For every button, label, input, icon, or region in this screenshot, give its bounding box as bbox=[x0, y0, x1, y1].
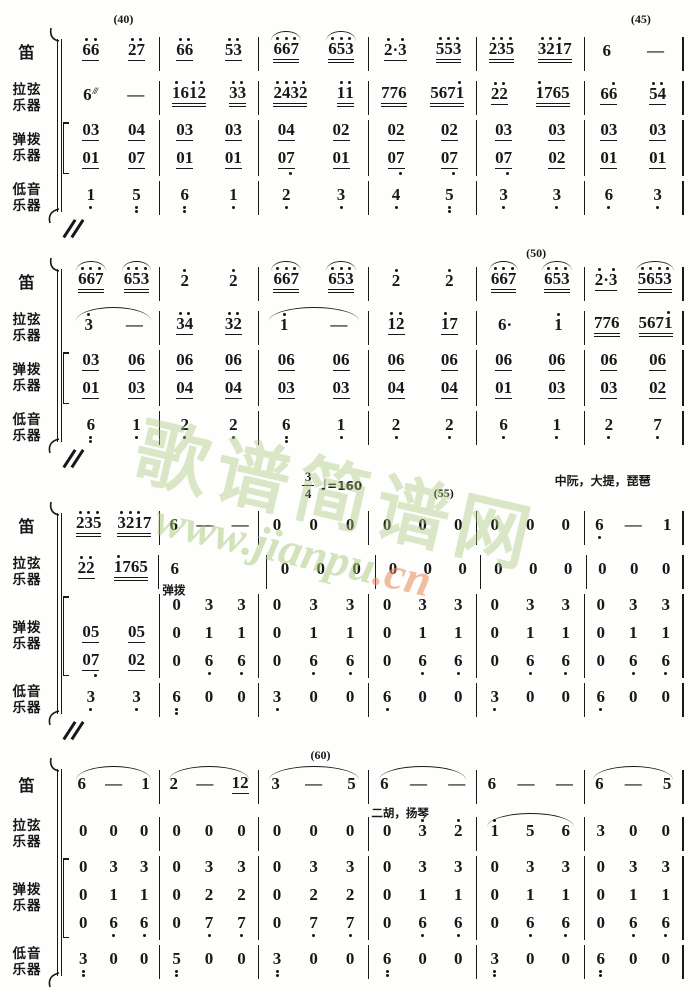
note-char: 6 bbox=[526, 647, 535, 681]
octave-dot-below-slot bbox=[502, 434, 505, 445]
note-char: 6 bbox=[595, 511, 604, 545]
note-digit: — bbox=[625, 775, 642, 793]
note-char: 6 bbox=[562, 647, 571, 681]
note-digit: — bbox=[518, 775, 535, 793]
octave-dot-below bbox=[457, 672, 460, 675]
note-digit: 4 bbox=[449, 379, 458, 397]
measure: 243211 bbox=[259, 81, 370, 115]
octave-dot-below-slot bbox=[276, 706, 279, 717]
note-char: 6 bbox=[661, 647, 670, 681]
measure: 033 bbox=[369, 856, 477, 884]
note-token: 6 bbox=[418, 647, 427, 681]
system-double-barline bbox=[57, 769, 62, 976]
note-token: 3 bbox=[553, 181, 562, 215]
note-digit: 0 bbox=[388, 379, 397, 397]
note-char: 5 bbox=[132, 265, 141, 304]
note-token: — bbox=[196, 770, 213, 804]
note-digit: 3 bbox=[661, 858, 670, 876]
measure: 61 bbox=[68, 411, 160, 445]
note-digit: 0 bbox=[649, 149, 658, 167]
note-char: 2 bbox=[392, 267, 401, 301]
note-char: 6 bbox=[91, 36, 100, 73]
note-digit: 6 bbox=[658, 351, 667, 369]
note-char: 3 bbox=[225, 310, 234, 347]
note-token: 2·3 bbox=[595, 266, 618, 303]
note-char: 5 bbox=[444, 35, 453, 74]
note-token: 0 bbox=[418, 511, 427, 545]
note-char: 7 bbox=[390, 79, 399, 118]
note-token: 6 bbox=[454, 909, 463, 943]
octave-dot-below-slot bbox=[349, 670, 352, 681]
note-token: 6 bbox=[170, 511, 179, 545]
note-digit: 1 bbox=[172, 84, 181, 102]
note-digit: 6 bbox=[629, 652, 638, 670]
note-digit: 0 bbox=[237, 822, 246, 840]
note-char: 3 bbox=[609, 266, 618, 303]
note-char: 0 bbox=[526, 683, 535, 717]
note-token: 6 bbox=[205, 647, 214, 681]
note-digit: 7 bbox=[594, 314, 603, 332]
octave-dot-below bbox=[276, 970, 279, 973]
note-char: 7 bbox=[396, 144, 405, 181]
octave-dot-below bbox=[555, 436, 558, 439]
note-digit: 0 bbox=[82, 379, 91, 397]
note-char: — bbox=[647, 37, 664, 71]
measure: 0707 bbox=[369, 148, 477, 176]
note-char: 0 bbox=[205, 945, 214, 979]
measure: 011 bbox=[585, 884, 684, 912]
note-digit: 0 bbox=[333, 379, 342, 397]
note-char: — bbox=[196, 511, 213, 545]
measure: 033 bbox=[369, 594, 477, 622]
note-digit: 1 bbox=[337, 84, 346, 102]
measure: 22 bbox=[160, 267, 258, 301]
note-char: 1 bbox=[490, 817, 499, 851]
note-token: 0 bbox=[109, 945, 118, 979]
octave-dot-below-slot bbox=[664, 932, 667, 943]
octave-dot-above-slot bbox=[348, 265, 351, 270]
note-char: 4 bbox=[233, 374, 242, 411]
note-digit: 3 bbox=[286, 379, 295, 397]
measure: 221765 bbox=[68, 555, 159, 589]
note-char: 6 bbox=[131, 553, 140, 592]
note-digit: 2 bbox=[557, 149, 566, 167]
note-digit: 6 bbox=[109, 914, 118, 932]
note-digit: 6 bbox=[282, 416, 291, 434]
octave-dot-below bbox=[175, 970, 178, 973]
note-digit: 6 bbox=[605, 186, 614, 204]
note-digit: 0 bbox=[600, 351, 609, 369]
note-digit: — bbox=[647, 42, 664, 60]
measure: 033 bbox=[68, 856, 160, 884]
note-digit: 1 bbox=[504, 379, 513, 397]
octave-dot-below bbox=[240, 672, 243, 675]
note-token: 2 bbox=[282, 181, 291, 215]
sheet-music-page: 笛拉弦乐器弹拨乐器低音乐器662766536676532·35532353217… bbox=[0, 0, 700, 1000]
note-token: 1 bbox=[87, 181, 96, 215]
note-token: 34 bbox=[176, 310, 193, 347]
note-digit: 3 bbox=[658, 121, 667, 139]
instrument-label: 拉弦乐器 bbox=[0, 550, 54, 594]
note-digit: 6 bbox=[647, 314, 656, 332]
measure: 33 bbox=[68, 683, 160, 717]
note-char: 7 bbox=[594, 309, 603, 348]
measure: 6—5 bbox=[585, 770, 684, 804]
note-digit: 1 bbox=[418, 886, 427, 904]
note-digit: 0 bbox=[140, 822, 149, 840]
measure: 066 bbox=[585, 650, 684, 678]
note-token: 6 bbox=[380, 770, 389, 804]
measure: 2—12 bbox=[160, 770, 258, 804]
note-char: 7 bbox=[290, 265, 299, 304]
note-digit: 2 bbox=[180, 272, 189, 290]
octave-dot-below bbox=[175, 708, 178, 711]
note-digit: 1 bbox=[205, 624, 214, 642]
note-digit: 6 bbox=[504, 351, 513, 369]
note-digit: 0 bbox=[454, 950, 463, 968]
measure: 033 bbox=[259, 856, 370, 884]
note-token: 5671 bbox=[639, 309, 673, 348]
note-digit: 3 bbox=[562, 596, 571, 614]
note-char: 6 bbox=[237, 647, 246, 681]
note-token: 2 bbox=[180, 411, 189, 445]
note-digit: 2 bbox=[229, 272, 238, 290]
note-token: 04 bbox=[441, 374, 458, 411]
note-token: 6 bbox=[603, 37, 612, 71]
measure: 066 bbox=[68, 912, 160, 940]
note-digit: 2 bbox=[170, 775, 179, 793]
octave-dot-above bbox=[144, 267, 147, 270]
octave-dot-below-slot bbox=[82, 968, 85, 979]
note-token: — bbox=[518, 770, 535, 804]
note-char: — bbox=[625, 770, 642, 804]
note-digit: 0 bbox=[597, 652, 606, 670]
note-char: 1 bbox=[536, 79, 545, 118]
staff-row: 612261226127 bbox=[68, 406, 684, 450]
measure-number: (45) bbox=[631, 12, 651, 27]
octave-dot-below bbox=[656, 206, 659, 209]
note-char: 0 bbox=[490, 511, 499, 545]
note-char: 0 bbox=[600, 374, 609, 411]
octave-dot-below-slot bbox=[421, 932, 424, 943]
octave-dot-below bbox=[340, 206, 343, 209]
note-token: 0 bbox=[205, 817, 214, 851]
note-token: 3 bbox=[490, 683, 499, 717]
octave-dot-below bbox=[632, 934, 635, 937]
note-digit: 6 bbox=[341, 351, 350, 369]
note-digit: 0 bbox=[490, 596, 499, 614]
measure: 300 bbox=[585, 817, 684, 851]
note-digit: 1 bbox=[91, 149, 100, 167]
note-digit: 2 bbox=[396, 121, 405, 139]
note-token: 3217 bbox=[117, 509, 151, 548]
note-digit: 0 bbox=[562, 950, 571, 968]
note-digit: 0 bbox=[418, 950, 427, 968]
note-digit: 2 bbox=[445, 416, 454, 434]
note-char: 3 bbox=[499, 181, 508, 215]
note-char: 6 bbox=[544, 265, 553, 304]
note-char: 2 bbox=[137, 646, 146, 683]
note-digit: 5 bbox=[526, 822, 535, 840]
octave-dot-below bbox=[89, 206, 92, 209]
octave-dot-below bbox=[285, 206, 288, 209]
note-digit: 6 bbox=[595, 516, 604, 534]
staves: 6—12—123—56——6——6—5000000000二胡，扬琴0321563… bbox=[68, 742, 684, 984]
note-char: 7 bbox=[137, 36, 146, 73]
octave-dot-below bbox=[175, 974, 178, 977]
octave-dot-below bbox=[448, 436, 451, 439]
measure: 161233 bbox=[160, 81, 258, 115]
octave-dot-below-slot bbox=[656, 434, 659, 445]
note-digit: 0 bbox=[389, 560, 398, 578]
note-digit: 0 bbox=[383, 516, 392, 534]
note-digit: 7 bbox=[449, 149, 458, 167]
note-digit: 0 bbox=[383, 652, 392, 670]
note-token: 0 bbox=[630, 555, 639, 589]
note-token: 0 bbox=[629, 817, 638, 851]
octave-dot-below-slot bbox=[183, 204, 186, 215]
note-digit: 3 bbox=[117, 514, 126, 532]
note-digit: 1 bbox=[456, 84, 465, 102]
note-token: — bbox=[127, 81, 144, 115]
note-digit: 2 bbox=[282, 186, 291, 204]
note-digit: 3 bbox=[629, 596, 638, 614]
note-char: 0 bbox=[309, 683, 318, 717]
note-token: 2 bbox=[445, 267, 454, 301]
octave-dot-below bbox=[564, 672, 567, 675]
note-char: 0 bbox=[526, 945, 535, 979]
note-digit: 0 bbox=[109, 950, 118, 968]
note-token: 07 bbox=[128, 144, 145, 181]
note-digit: 0 bbox=[82, 121, 91, 139]
octave-dot-above bbox=[511, 267, 514, 270]
measure: 0303 bbox=[160, 120, 258, 148]
note-digit: — bbox=[196, 775, 213, 793]
note-token: 6 bbox=[418, 909, 427, 943]
note-char: 0 bbox=[598, 555, 607, 589]
note-digit: 3 bbox=[345, 270, 354, 288]
note-char: 2 bbox=[445, 267, 454, 301]
note-digit: 0 bbox=[333, 351, 342, 369]
octave-dot-above-slot bbox=[666, 265, 669, 270]
note-char: 3 bbox=[490, 683, 499, 717]
note-digit: 0 bbox=[82, 623, 91, 641]
note-digit: 6 bbox=[609, 351, 618, 369]
note-digit: 0 bbox=[495, 379, 504, 397]
measure: 1217 bbox=[369, 311, 477, 345]
note-digit: — bbox=[330, 316, 347, 334]
note-token: 03 bbox=[600, 374, 617, 411]
note-token: 0 bbox=[383, 511, 392, 545]
note-digit: 6 bbox=[544, 270, 553, 288]
note-token: 03 bbox=[128, 374, 145, 411]
octave-dot-below-slot bbox=[285, 434, 288, 445]
note-digit: 3 bbox=[346, 858, 355, 876]
note-char: — bbox=[126, 311, 143, 345]
note-token: 0 bbox=[346, 817, 355, 851]
note-digit: 0 bbox=[346, 688, 355, 706]
staff-row: 000000000二胡，扬琴032156300 bbox=[68, 812, 684, 856]
note-digit: 6 bbox=[491, 270, 500, 288]
measure: 667653 bbox=[259, 37, 370, 71]
note-digit: 0 bbox=[82, 351, 91, 369]
octave-dot-below-slot bbox=[564, 932, 567, 943]
plucked-group-bracket bbox=[63, 858, 69, 938]
note-digit: 2 bbox=[595, 271, 604, 289]
note-char: 3 bbox=[345, 35, 354, 74]
score-system: 笛拉弦乐器弹拨乐器低音乐器23532176——0000000006—122176… bbox=[0, 470, 700, 722]
note-char: 5 bbox=[655, 265, 664, 304]
note-token: 66 bbox=[176, 36, 193, 73]
octave-dot-below-slot bbox=[564, 670, 567, 681]
note-char: 2 bbox=[78, 554, 87, 591]
measure: 61 bbox=[477, 411, 585, 445]
note-digit: 6 bbox=[454, 652, 463, 670]
octave-dot-below bbox=[135, 708, 138, 711]
note-token: 0 bbox=[172, 817, 181, 851]
note-digit: 3 bbox=[176, 315, 185, 333]
octave-dot-below bbox=[599, 970, 602, 973]
measure: 033 bbox=[160, 856, 258, 884]
octave-dot-below bbox=[232, 206, 235, 209]
note-digit: 0 bbox=[548, 149, 557, 167]
note-digit: 6 bbox=[562, 652, 571, 670]
note-digit: 4 bbox=[282, 84, 291, 102]
instrument-label: 弹拨乐器 bbox=[0, 856, 54, 940]
note-token: 0 bbox=[424, 555, 433, 589]
note-digit: 0 bbox=[600, 379, 609, 397]
note-token: 2 bbox=[605, 411, 614, 445]
note-char: 4 bbox=[185, 374, 194, 411]
note-char: 6 bbox=[611, 309, 620, 348]
octave-dot-above bbox=[502, 267, 505, 270]
octave-dot-below bbox=[143, 934, 146, 937]
note-digit: 0 bbox=[458, 560, 467, 578]
note-digit: 0 bbox=[172, 822, 181, 840]
note-char: 0 bbox=[79, 909, 88, 943]
octave-dot-below-slot bbox=[448, 204, 451, 215]
octave-dot-above bbox=[127, 267, 130, 270]
plucked-group-bracket bbox=[63, 596, 69, 676]
measure: 000 bbox=[369, 511, 477, 545]
note-digit: 5 bbox=[225, 41, 234, 59]
note-char: 5 bbox=[553, 265, 562, 304]
octave-dot-below-slot bbox=[340, 434, 343, 445]
note-digit: 0 bbox=[278, 379, 287, 397]
note-digit: 0 bbox=[225, 149, 234, 167]
measure: 0606 bbox=[160, 350, 258, 378]
note-digit: 5 bbox=[444, 40, 453, 58]
note-token: 1765 bbox=[536, 79, 570, 118]
note-digit: 3 bbox=[490, 950, 499, 968]
octave-dot-below bbox=[276, 974, 279, 977]
instrument-label-line: 弹拨 bbox=[13, 362, 42, 378]
note-char: 3 bbox=[663, 265, 672, 304]
note-digit: 0 bbox=[526, 688, 535, 706]
note-digit: 5 bbox=[663, 775, 672, 793]
note-token: 6 bbox=[172, 683, 181, 717]
note-token: 54 bbox=[649, 80, 666, 117]
note-token: 53 bbox=[225, 36, 242, 73]
instrument-label-line: 乐器 bbox=[13, 636, 42, 652]
octave-dot-below bbox=[175, 712, 178, 715]
note-char: 3 bbox=[176, 310, 185, 347]
note-digit: 1 bbox=[189, 84, 198, 102]
note-token: 11 bbox=[337, 79, 354, 118]
note-token: 6 bbox=[180, 181, 189, 215]
note-digit: 2 bbox=[197, 84, 206, 102]
note-digit: 4 bbox=[185, 379, 194, 397]
note-token: 01 bbox=[333, 144, 350, 181]
octave-dot-below-slot bbox=[276, 968, 279, 979]
note-token: 6/// bbox=[83, 81, 97, 115]
note-digit: 5 bbox=[91, 623, 100, 641]
note-char: 0 bbox=[418, 511, 427, 545]
note-digit: 0 bbox=[128, 121, 137, 139]
note-token: 6 bbox=[488, 770, 497, 804]
note-digit: 0 bbox=[309, 516, 318, 534]
note-char: 2 bbox=[445, 411, 454, 445]
measure: 667653 bbox=[477, 267, 585, 301]
staff-row: 66765322667653226676532·35653 bbox=[68, 262, 684, 306]
note-digit: 3 bbox=[653, 186, 662, 204]
note-char: 1 bbox=[189, 79, 198, 118]
measure: 033 bbox=[477, 594, 585, 622]
note-char: 0 bbox=[494, 555, 503, 589]
measure: 6·1 bbox=[477, 311, 585, 345]
octave-dot-below bbox=[502, 436, 505, 439]
note-char: 7 bbox=[122, 553, 131, 592]
note-char: 3 bbox=[345, 265, 354, 304]
note-char: 3 bbox=[137, 374, 146, 411]
octave-dot-below-slot bbox=[175, 706, 178, 717]
note-char: 0 bbox=[526, 511, 535, 545]
note-token: 0 bbox=[526, 511, 535, 545]
note-digit: 2 bbox=[392, 272, 401, 290]
note-digit: 0 bbox=[128, 651, 137, 669]
note-token: 0 bbox=[597, 647, 606, 681]
note-token: 0 bbox=[661, 945, 670, 979]
note-char: 2 bbox=[489, 35, 498, 74]
note-digit: 0 bbox=[629, 950, 638, 968]
note-char: 3 bbox=[557, 374, 566, 411]
note-char: 2 bbox=[392, 411, 401, 445]
note-char: 6 bbox=[646, 265, 655, 304]
note-digit: 6 bbox=[383, 950, 392, 968]
octave-dot-above bbox=[81, 267, 84, 270]
note-token: 6 bbox=[597, 683, 606, 717]
octave-dot-below bbox=[529, 672, 532, 675]
note-digit: 1 bbox=[237, 624, 246, 642]
note-char: 1 bbox=[132, 411, 141, 445]
note-token: 5671 bbox=[430, 79, 464, 118]
note-char: 3 bbox=[538, 35, 547, 74]
note-digit: 2 bbox=[491, 85, 500, 103]
note-char: 7 bbox=[290, 35, 299, 74]
note-digit: 0 bbox=[649, 379, 658, 397]
note-char: — bbox=[448, 770, 465, 804]
note-char: — bbox=[556, 770, 573, 804]
note-digit: 0 bbox=[237, 688, 246, 706]
octave-dot-below-slot bbox=[607, 434, 610, 445]
note-char: 4 bbox=[396, 374, 405, 411]
note-digit: 0 bbox=[278, 121, 287, 139]
note-digit: 0 bbox=[309, 688, 318, 706]
note-digit: 1 bbox=[661, 624, 670, 642]
octave-dot-below-slot bbox=[457, 932, 460, 943]
note-token: 32 bbox=[225, 310, 242, 347]
staves: 66765322667653226676532·356533—34321—121… bbox=[68, 240, 684, 450]
